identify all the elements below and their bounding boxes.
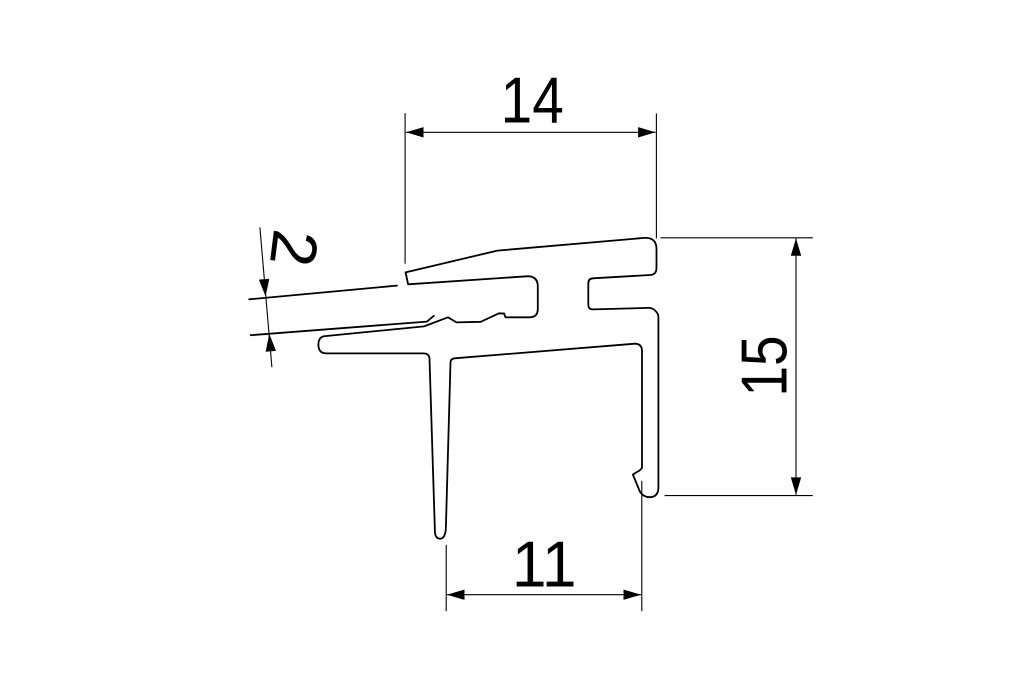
svg-text:15: 15	[728, 336, 800, 397]
svg-text:11: 11	[512, 528, 577, 600]
svg-text:14: 14	[501, 65, 564, 137]
